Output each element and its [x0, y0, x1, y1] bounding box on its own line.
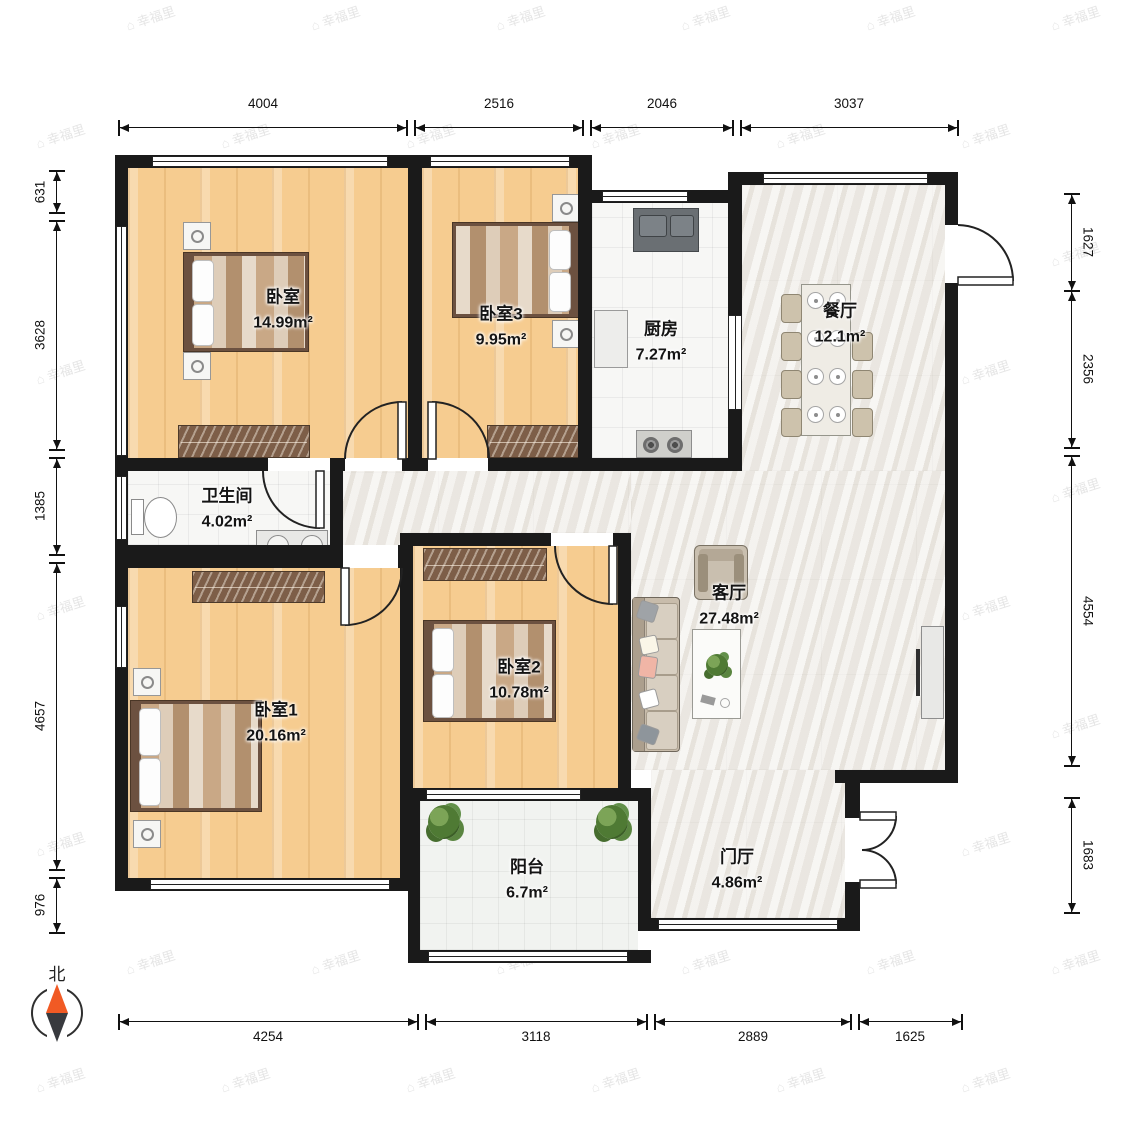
window [116, 606, 127, 668]
dimension-line [656, 1021, 850, 1022]
dimension-tick [49, 212, 65, 214]
dining-chair [781, 370, 802, 399]
dimension-line [56, 564, 57, 869]
dimension-value: 4554 [1081, 596, 1096, 626]
north-label: 北 [49, 960, 66, 985]
wall-segment [330, 458, 343, 568]
door-opening-entry [845, 818, 860, 882]
burner [643, 437, 659, 453]
nightstand [133, 668, 161, 696]
dimension-tick [417, 1014, 419, 1030]
watermark: ⌂ 幸福里 [1048, 473, 1102, 507]
nightstand [552, 194, 580, 222]
wall-segment [638, 801, 651, 931]
door-opening-bedroom1 [343, 545, 398, 568]
watermark: ⌂ 幸福里 [588, 1063, 642, 1097]
dimension-value: 2356 [1081, 354, 1096, 384]
plate [807, 406, 824, 423]
dimension-line [56, 459, 57, 554]
watermark: ⌂ 幸福里 [958, 355, 1012, 389]
compass-needle-south [46, 1013, 68, 1042]
room-area: 4.86m² [712, 871, 763, 897]
watermark: ⌂ 幸福里 [308, 945, 362, 979]
window [152, 156, 388, 167]
sofa [632, 597, 680, 752]
watermark: ⌂ 幸福里 [493, 1, 547, 35]
room-label-kitchen: 厨房 7.27m² [636, 316, 687, 369]
wall-segment [408, 788, 420, 963]
dimension-tick [1064, 455, 1080, 457]
pillow [549, 272, 571, 312]
window [116, 226, 127, 456]
watermark: ⌂ 幸福里 [123, 1, 177, 35]
watermark: ⌂ 幸福里 [958, 827, 1012, 861]
wall-segment [115, 545, 343, 568]
dimension-tick [1064, 193, 1080, 195]
watermark: ⌂ 幸福里 [1048, 1, 1102, 35]
dimension-tick [646, 1014, 648, 1030]
dining-chair [781, 294, 802, 323]
watermark: ⌂ 幸福里 [123, 945, 177, 979]
pillow [549, 230, 571, 270]
room-name: 阳台 [506, 854, 548, 881]
compass-needle-north [46, 984, 68, 1013]
fridge [594, 310, 628, 368]
coffee-table [692, 629, 741, 719]
room-area: 9.95m² [476, 328, 527, 354]
wardrobe [487, 425, 585, 458]
watermark: ⌂ 幸福里 [958, 1063, 1012, 1097]
watermark: ⌂ 幸福里 [863, 1, 917, 35]
wall-segment [835, 770, 958, 783]
dimension-tick [406, 120, 408, 136]
dimension-tick [49, 869, 65, 871]
plant-icon [596, 805, 628, 839]
dimension-line [120, 1021, 417, 1022]
watermark: ⌂ 幸福里 [678, 1, 732, 35]
door-leaf [958, 277, 1013, 285]
room-label-foyer: 门厅 4.86m² [712, 844, 763, 897]
room-area: 6.7m² [506, 881, 548, 907]
door-opening-bath [268, 458, 330, 471]
tv-cabinet [921, 626, 944, 719]
dimension-tick [49, 220, 65, 222]
door-opening-bedroom2 [551, 533, 613, 546]
kitchen-sink [633, 208, 699, 252]
wardrobe [423, 548, 547, 581]
watermark: ⌂ 幸福里 [33, 119, 87, 153]
wardrobe [178, 425, 310, 458]
room-name: 门厅 [712, 844, 763, 871]
dimension-tick [118, 120, 120, 136]
pillow [432, 674, 454, 718]
watermark: ⌂ 幸福里 [33, 827, 87, 861]
room-label-bedroom2: 卧室2 10.78m² [489, 654, 549, 707]
bed-bedroom1 [130, 700, 262, 812]
floorplan-canvas: ⌂ 幸福里⌂ 幸福里⌂ 幸福里⌂ 幸福里⌂ 幸福里⌂ 幸福里⌂ 幸福里⌂ 幸福里… [0, 0, 1125, 1125]
dimension-tick [590, 120, 592, 136]
door-arc-entry-top [862, 816, 896, 850]
dimension-tick [1064, 797, 1080, 799]
dimension-value: 1683 [1081, 840, 1096, 870]
dimension-value: 4254 [253, 1029, 283, 1044]
dining-chair [852, 370, 873, 399]
decor-item [720, 698, 730, 708]
dimension-tick [1064, 447, 1080, 449]
wall-segment [845, 882, 860, 931]
room-area: 27.48m² [699, 607, 759, 633]
door-arc-entry-bottom [862, 850, 896, 884]
watermark: ⌂ 幸福里 [958, 119, 1012, 153]
window [658, 919, 838, 930]
dimension-tick [1064, 765, 1080, 767]
watermark: ⌂ 幸福里 [1048, 709, 1102, 743]
dimension-line [56, 222, 57, 449]
pillow [139, 708, 161, 756]
room-area: 10.78m² [489, 681, 549, 707]
door-leaf [860, 812, 896, 820]
window [763, 173, 928, 184]
watermark: ⌂ 幸福里 [1048, 945, 1102, 979]
throw-pillow [638, 634, 659, 655]
room-name: 卧室2 [489, 654, 549, 681]
plate [807, 368, 824, 385]
nightstand [133, 820, 161, 848]
burner [667, 437, 683, 453]
door-opening-bedroom3 [428, 458, 488, 471]
watermark: ⌂ 幸福里 [33, 591, 87, 625]
dimension-tick [858, 1014, 860, 1030]
window [430, 156, 570, 167]
dining-chair [852, 408, 873, 437]
pillow [432, 628, 454, 672]
dimension-tick [414, 120, 416, 136]
watermark: ⌂ 幸福里 [33, 355, 87, 389]
wall-segment [845, 783, 860, 818]
window [428, 951, 628, 962]
window [116, 476, 127, 540]
watermark: ⌂ 幸福里 [218, 1063, 272, 1097]
kitchen-slider [728, 315, 742, 410]
dimension-line [427, 1021, 646, 1022]
throw-pillow [638, 655, 659, 679]
dimension-line [742, 127, 957, 128]
room-name: 卫生间 [202, 483, 253, 510]
pillow [139, 758, 161, 806]
dimension-tick [49, 457, 65, 459]
dimension-line [860, 1021, 961, 1022]
room-area: 14.99m² [253, 311, 313, 337]
pillow [192, 260, 214, 302]
wardrobe [192, 571, 325, 603]
dimension-line [1071, 195, 1072, 290]
door-opening-master [345, 458, 402, 471]
dimension-value: 3037 [834, 96, 864, 111]
dimension-line [416, 127, 582, 128]
plate [829, 406, 846, 423]
plate [829, 368, 846, 385]
dimension-tick [582, 120, 584, 136]
dimension-tick [732, 120, 734, 136]
watermark: ⌂ 幸福里 [773, 119, 827, 153]
dimension-line [592, 127, 732, 128]
sink-basin [670, 215, 694, 237]
dimension-tick [118, 1014, 120, 1030]
nightstand [552, 320, 580, 348]
dimension-value: 3628 [33, 320, 48, 350]
watermark: ⌂ 幸福里 [773, 1063, 827, 1097]
plant-icon [428, 805, 460, 839]
dimension-tick [1064, 290, 1080, 292]
room-name: 客厅 [699, 580, 759, 607]
watermark: ⌂ 幸福里 [863, 945, 917, 979]
dimension-tick [49, 554, 65, 556]
watermark: ⌂ 幸福里 [678, 945, 732, 979]
door-leaf [860, 880, 896, 888]
dimension-value: 4004 [248, 96, 278, 111]
room-name: 餐厅 [815, 298, 866, 325]
dimension-value: 2046 [647, 96, 677, 111]
dimension-value: 1627 [1081, 227, 1096, 257]
wall-segment [618, 533, 631, 801]
watermark: ⌂ 幸福里 [958, 591, 1012, 625]
dimension-tick [850, 1014, 852, 1030]
room-label-bath: 卫生间 4.02m² [202, 483, 253, 536]
dimension-tick [49, 877, 65, 879]
dimension-tick [49, 449, 65, 451]
dimension-line [120, 127, 406, 128]
watermark: ⌂ 幸福里 [33, 1063, 87, 1097]
wall-segment [578, 155, 592, 471]
room-label-balcony: 阳台 6.7m² [506, 854, 548, 907]
nightstand [183, 222, 211, 250]
dimension-tick [425, 1014, 427, 1030]
dining-chair [781, 408, 802, 437]
tv [916, 649, 920, 696]
dimension-tick [957, 120, 959, 136]
room-label-living: 客厅 27.48m² [699, 580, 759, 633]
dimension-line [1071, 457, 1072, 765]
dimension-line [56, 879, 57, 932]
room-label-bedroom3: 卧室3 9.95m² [476, 301, 527, 354]
wall-segment [408, 155, 422, 471]
nightstand [183, 352, 211, 380]
dimension-value: 976 [33, 894, 48, 917]
watermark: ⌂ 幸福里 [403, 1063, 457, 1097]
watermark: ⌂ 幸福里 [403, 119, 457, 153]
room-area: 7.27m² [636, 343, 687, 369]
room-name: 卧室1 [246, 697, 306, 724]
dimension-line [56, 172, 57, 212]
dining-chair [781, 332, 802, 361]
toilet [144, 497, 177, 538]
room-name: 厨房 [636, 316, 687, 343]
balcony-slider [426, 789, 581, 800]
sink-basin [639, 215, 667, 237]
stove [636, 430, 692, 458]
plant-icon [706, 654, 728, 676]
dimension-tick [49, 170, 65, 172]
room-area: 4.02m² [202, 510, 253, 536]
window [150, 879, 390, 890]
toilet-tank [131, 499, 144, 535]
window [602, 191, 688, 202]
dimension-tick [654, 1014, 656, 1030]
watermark: ⌂ 幸福里 [218, 119, 272, 153]
pillow [192, 304, 214, 346]
room-name: 卧室3 [476, 301, 527, 328]
room-area: 20.16m² [246, 724, 306, 750]
room-label-dining: 餐厅 12.1m² [815, 298, 866, 351]
dimension-tick [740, 120, 742, 136]
dimension-value: 3118 [521, 1029, 550, 1044]
watermark: ⌂ 幸福里 [308, 1, 362, 35]
dimension-tick [49, 932, 65, 934]
dimension-value: 2516 [484, 96, 514, 111]
dimension-tick [1064, 912, 1080, 914]
dimension-value: 1625 [895, 1029, 925, 1044]
dimension-tick [961, 1014, 963, 1030]
door-arc-dining [958, 225, 1013, 281]
dimension-tick [49, 562, 65, 564]
room-area: 12.1m² [815, 325, 866, 351]
dimension-line [1071, 799, 1072, 912]
room-label-bedroom1: 卧室1 20.16m² [246, 697, 306, 750]
dimension-value: 1385 [33, 491, 48, 521]
door-opening-dining [945, 225, 958, 283]
dimension-value: 631 [33, 181, 48, 204]
remote [700, 694, 716, 705]
dimension-line [1071, 292, 1072, 447]
room-label-master: 卧室 14.99m² [253, 284, 313, 337]
dimension-value: 4657 [33, 701, 48, 731]
dimension-value: 2889 [738, 1029, 768, 1044]
room-name: 卧室 [253, 284, 313, 311]
